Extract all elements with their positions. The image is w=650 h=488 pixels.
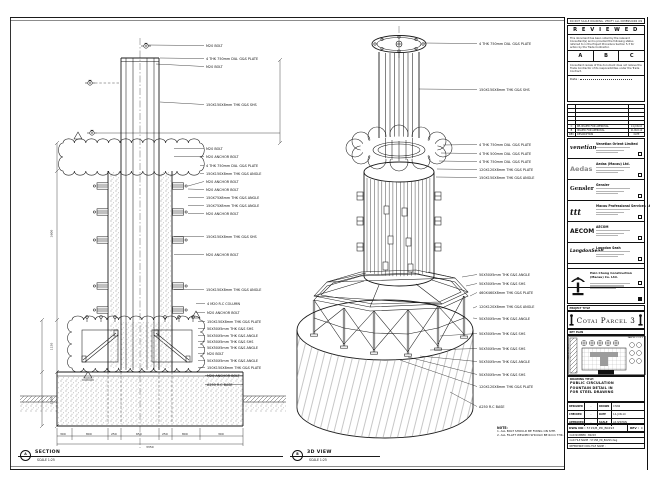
signoff-fields: DESIGNED - DRAWN CHAN CHECKED - DATE 14-… — [567, 402, 645, 424]
callout: 50X50X5mm THK G&S SHS — [479, 347, 525, 351]
callout: M20 ANCHOR BOLT — [206, 180, 239, 184]
callout: 50X50X5mm THK G&S ANGLE — [207, 334, 258, 338]
callout: 4 THK 750mm DIA. G&S PLATE — [479, 42, 531, 46]
reference-dwg: REFERENCE DWG FILE NAME : — [568, 443, 644, 448]
company-row: AECOM AECOM — [567, 222, 645, 243]
company-name: AECOM — [596, 225, 609, 229]
company-name: Aedas (Macau) Ltd. — [596, 162, 630, 166]
dim-value: 800 — [182, 433, 188, 436]
callout: 150X150X8mm THK G&S SHS — [206, 235, 257, 239]
callout: M20 ANCHOR BOLT — [207, 374, 240, 378]
company-checkbox — [638, 194, 642, 198]
status-option-c: C — [619, 51, 644, 61]
venetian-logo: venetian — [570, 145, 594, 151]
aecom-logo: AECOM — [570, 228, 594, 235]
callout: 4 THK 750mm DIA. G&S PLATE — [479, 143, 531, 147]
callout: 4 THK 750mm DIA. G&S PLATE — [206, 164, 258, 168]
sheet-linework — [0, 0, 650, 488]
company-address — [596, 230, 630, 238]
company-checkbox — [638, 257, 642, 261]
drawing-title-block: DRAWING TITLE: PUBLIC CIRCULATION FOUNTA… — [567, 376, 645, 402]
company-name: Gensler — [596, 183, 609, 187]
company-name: Venetian Orient Limited — [596, 142, 638, 146]
reviewed-para2: Consultant review of this document does … — [568, 62, 644, 74]
iso-scale: SCALE 1:25 — [309, 458, 327, 462]
langdonseah-logo: LangdonSeah — [570, 249, 594, 254]
callout: 50X50X5mm THK G&S SHS — [479, 282, 525, 286]
gensler-logo: Gensler — [570, 186, 594, 192]
aedas-logo: Aedas — [570, 165, 594, 173]
project-name: Cotai Parcel 3 — [567, 311, 645, 329]
status-option-a: A — [568, 51, 594, 61]
key-plan — [567, 335, 645, 376]
revision-header-row: REV DESCRIPTION DATE — [568, 132, 644, 136]
callout: A250 R.C BASE — [479, 405, 505, 409]
callout: M20 BOLT — [206, 65, 223, 69]
company-list: venetian Venetian Orient Limited Aedas A… — [567, 138, 645, 288]
iso-bubble: B — [292, 450, 303, 461]
contractor-logo-icon — [570, 274, 586, 298]
tower-ornament-icon — [638, 314, 643, 326]
key-plan-parcel1-label: PARCEL 1 OF 3 — [568, 337, 570, 367]
dim-value: 250 — [162, 433, 168, 436]
dim-total: 3350 — [146, 446, 154, 449]
dwg-number-row: DWG NO : 5715/B_PD_B0293 REV :C — [567, 424, 645, 432]
dim-value: 300 — [60, 433, 66, 436]
callout: 150X150X8mm THK G&S SHS — [479, 88, 530, 92]
cad-info-rows: CAD NUMBER : B0293 CAD FILE NAME : 5715B… — [567, 432, 645, 449]
callout: 460X460X8mm THK G&S PLATE — [479, 291, 533, 295]
key-plan-parcel2-label: PARCEL 2 OF 3 — [628, 337, 643, 339]
callout: 4 THK 750mm DIA. G&S PLATE — [206, 57, 258, 61]
iso-view-graphics — [290, 26, 477, 457]
callout: 150X150X8mm THK G&S ANGLE — [206, 172, 261, 176]
status-option-b: B — [594, 51, 620, 61]
company-address — [596, 167, 630, 175]
section-view-graphics — [18, 38, 286, 457]
company-checkbox — [638, 215, 642, 219]
callout: 50X50X5mm THK G&S ANGLE — [479, 360, 530, 364]
callout: 50X50X5mm THK G&S SHS — [479, 332, 525, 336]
callout: 120X120X8mm THK G&S ANGLE — [479, 305, 534, 309]
dim-value: 650 — [136, 433, 142, 436]
status-options: A B C — [568, 50, 644, 62]
company-row: Aedas Aedas (Macau) Ltd. — [567, 159, 645, 180]
callout: 150X75X8mm THK G&S ANGLE — [206, 196, 259, 200]
title-block: DO NOT SCALE DRAWING. VERIFY ALL DIMENSI… — [564, 17, 648, 470]
callout: M20 ANCHOR BOLT — [206, 155, 239, 159]
section-scale: SCALE 1:25 — [37, 458, 55, 462]
company-address — [596, 188, 630, 196]
company-address — [596, 147, 630, 155]
callout: 4 M20 R.C COLUMN — [207, 302, 240, 306]
reviewed-para1: This document has been noted by the rele… — [568, 35, 644, 50]
edge-note: DO NOT SCALE DRAWING. VERIFY ALL DIMENSI… — [567, 18, 645, 24]
reviewed-title: R E V I E W E D — [568, 26, 644, 35]
company-address — [596, 251, 630, 259]
company-row: LangdonSeah Langdon Seah — [567, 243, 645, 264]
callout: M20 BOLT — [207, 352, 224, 356]
section-bubble: A — [20, 450, 31, 461]
tower-ornament-icon — [569, 314, 574, 326]
dim-value: 1150 — [50, 343, 53, 351]
callout: 150X150X8mm THK G&S PLATE — [207, 366, 261, 370]
dim-value: 800 — [86, 433, 92, 436]
callout: M20 BOLT — [206, 44, 223, 48]
callout: 50X50X5mm THK G&S SHS — [207, 327, 253, 331]
company-name: Macau Professional Services Ltd. — [596, 204, 650, 208]
callout: 50X50X5mm THK G&S ANGLE — [207, 346, 258, 350]
company-name: Langdon Seah — [596, 246, 621, 250]
drawing-title-line: FOR STEEL DRAWING — [570, 390, 642, 395]
section-title: SECTION — [35, 450, 60, 455]
contractor-address — [590, 283, 630, 290]
callout: 150X150X8mm THK G&S PLATE — [207, 320, 261, 324]
contractor-name: Hsin Chong Construction (Macau) Co. Ltd. — [590, 272, 642, 279]
callout: M20 ANCHOR BOLT — [206, 212, 239, 216]
callout: M20 ANCHOR BOLT — [207, 311, 240, 315]
callout: M20 ANCHOR BOLT — [206, 253, 239, 257]
company-checkbox — [638, 152, 642, 156]
company-checkbox — [638, 236, 642, 240]
company-row: venetian Venetian Orient Limited — [567, 138, 645, 159]
callout: 50X50X5mm THK G&S ANGLE — [207, 359, 258, 363]
callout: 120X120X8mm THK G&S PLATE — [479, 385, 533, 389]
notes-block: NOTE: 1. ALL BOLT SHOULD BE FIXING ON SI… — [497, 426, 569, 437]
callout: M20 BOLT — [206, 147, 223, 151]
callout: M20 ANCHOR BOLT — [206, 188, 239, 192]
company-row: Gensler Gensler — [567, 180, 645, 201]
contractor-block: Hsin Chong Construction (Macau) Co. Ltd. — [567, 268, 645, 304]
dim-value: 1350 — [50, 397, 53, 405]
reviewed-stamp: R E V I E W E D This document has been n… — [567, 25, 645, 102]
callout: 50X50X5mm THK G&S SHS — [207, 340, 253, 344]
callout: 4 THK 500mm DIA. G&S PLATE — [479, 152, 531, 156]
dim-value: 250 — [111, 433, 117, 436]
callout: 150X150X8mm THK G&S ANGLE — [479, 176, 534, 180]
company-checkbox — [638, 173, 642, 177]
callout: 150X150X8mm THK G&S ANGLE — [206, 288, 261, 292]
company-row: ttt Macau Professional Services Ltd. — [567, 201, 645, 222]
contractor-mark — [638, 297, 642, 301]
dim-value: 300 — [218, 433, 224, 436]
callout: 150X75X8mm THK G&S ANGLE — [206, 204, 259, 208]
dim-value: 3600 — [50, 230, 53, 238]
callout: 50X50X5mm THK G&S ANGLE — [479, 317, 530, 321]
reviewed-date: Date : — [568, 75, 644, 82]
iso-title: 3D VIEW — [307, 450, 332, 455]
callout: 50X50X5mm THK G&S SHS — [479, 373, 525, 377]
callout: A250 R.C BASE — [207, 383, 233, 387]
callout: 120X120X8mm THK G&S PLATE — [479, 168, 533, 172]
revision-table: C RE-ISSUED FOR APPROVAL 14-JUN-10 B ISS… — [567, 104, 645, 137]
callout: 4 THK 750mm DIA. G&S PLATE — [479, 160, 531, 164]
note-item: 2. ALL FILLET WELDED SHOULD BE 6mm THK. — [497, 434, 569, 438]
mps-logo: ttt — [570, 207, 594, 217]
key-plan-drawing — [568, 336, 646, 375]
callout: 50X50X5mm THK G&S ANGLE — [479, 273, 530, 277]
callout: 150X150X8mm THK G&S SHS — [206, 103, 257, 107]
company-address — [596, 209, 630, 217]
